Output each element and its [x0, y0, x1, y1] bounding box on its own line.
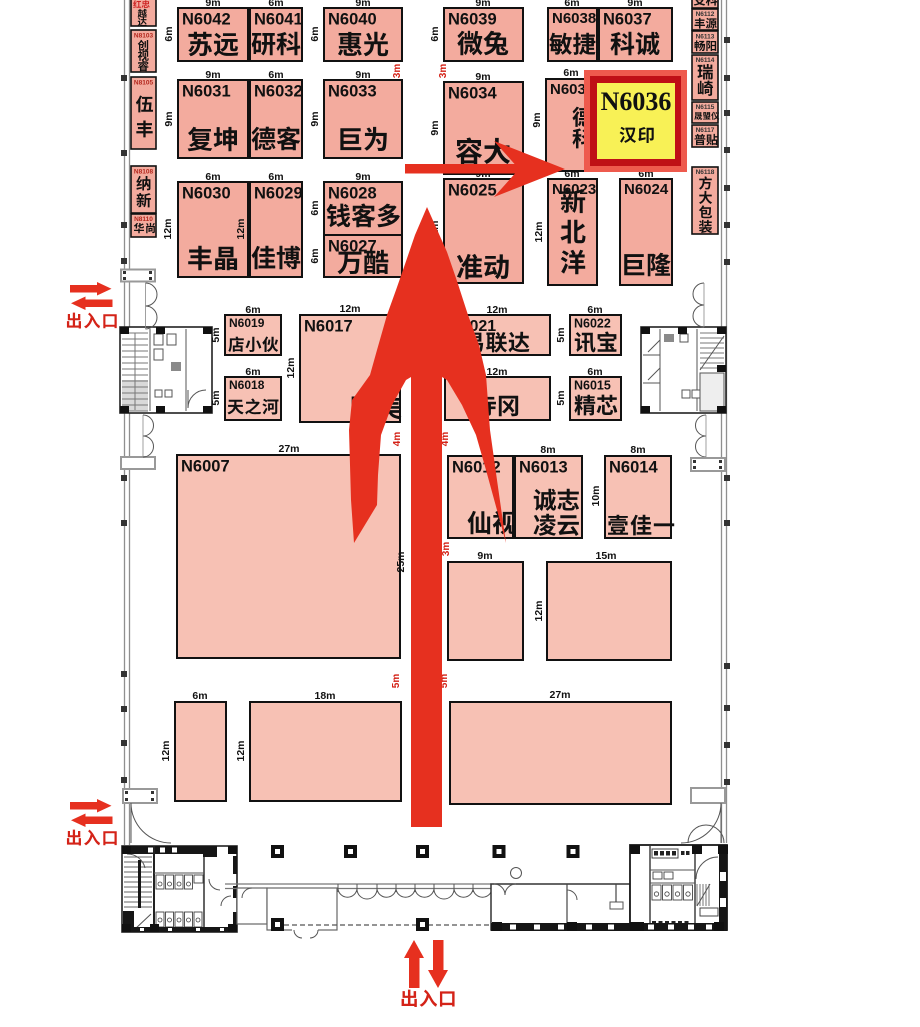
svg-text:9m: 9m: [355, 171, 370, 183]
svg-text:N6029: N6029: [254, 185, 303, 203]
svg-text:6m: 6m: [564, 0, 579, 9]
svg-text:6m: 6m: [163, 26, 175, 41]
svg-text:N6018: N6018: [229, 378, 265, 392]
svg-text:6m: 6m: [587, 366, 602, 378]
svg-text:6m: 6m: [268, 171, 283, 183]
svg-text:9m: 9m: [205, 69, 220, 81]
svg-text:N6019: N6019: [229, 316, 265, 330]
svg-text:N6033: N6033: [328, 83, 377, 101]
svg-text:6m: 6m: [268, 69, 283, 81]
svg-text:N6114: N6114: [696, 57, 715, 64]
svg-text:12m: 12m: [235, 218, 247, 239]
svg-text:N6032: N6032: [254, 83, 303, 101]
svg-text:N6113: N6113: [696, 34, 715, 41]
svg-text:N6039: N6039: [448, 11, 497, 29]
svg-text:6m: 6m: [587, 304, 602, 316]
svg-text:3m: 3m: [441, 542, 452, 557]
svg-text:12m: 12m: [235, 740, 247, 761]
svg-text:N6117: N6117: [696, 127, 715, 134]
svg-text:N6013: N6013: [519, 459, 568, 477]
svg-text:N6040: N6040: [328, 11, 377, 29]
svg-text:8m: 8m: [540, 444, 555, 456]
svg-text:N6118: N6118: [696, 169, 715, 176]
svg-text:18m: 18m: [314, 690, 335, 702]
svg-text:6m: 6m: [309, 248, 321, 263]
svg-text:N6042: N6042: [182, 11, 231, 29]
svg-text:6m: 6m: [268, 0, 283, 9]
svg-text:9m: 9m: [205, 0, 220, 9]
svg-text:N6007: N6007: [181, 458, 230, 476]
svg-text:6m: 6m: [429, 26, 441, 41]
svg-text:9m: 9m: [627, 0, 642, 9]
svg-text:N6037: N6037: [603, 11, 652, 29]
svg-text:9m: 9m: [355, 69, 370, 81]
svg-text:6m: 6m: [563, 67, 578, 79]
svg-text:N6030: N6030: [182, 185, 231, 203]
svg-text:N8105: N8105: [134, 80, 154, 87]
svg-text:12m: 12m: [486, 366, 507, 378]
svg-text:5m: 5m: [210, 327, 222, 342]
svg-text:6m: 6m: [245, 366, 260, 378]
svg-text:12m: 12m: [339, 303, 360, 315]
svg-text:15m: 15m: [595, 550, 616, 562]
svg-text:N6024: N6024: [624, 181, 669, 198]
svg-text:N6017: N6017: [304, 318, 353, 336]
svg-text:3m: 3m: [438, 64, 449, 79]
svg-text:5m: 5m: [555, 390, 567, 405]
svg-text:N6034: N6034: [448, 85, 497, 103]
svg-text:N6023: N6023: [552, 181, 596, 198]
svg-text:5m: 5m: [210, 390, 222, 405]
svg-text:9m: 9m: [355, 0, 370, 9]
svg-text:9m: 9m: [163, 111, 175, 126]
svg-text:12m: 12m: [533, 221, 545, 242]
svg-text:9m: 9m: [475, 0, 490, 9]
svg-text:N8110: N8110: [134, 216, 153, 223]
svg-text:N6036: N6036: [601, 87, 672, 116]
svg-text:6m: 6m: [205, 171, 220, 183]
svg-text:5m: 5m: [391, 674, 402, 689]
svg-text:N8103: N8103: [134, 33, 154, 40]
svg-text:N6022: N6022: [574, 317, 611, 331]
svg-text:12m: 12m: [162, 218, 174, 239]
svg-text:N6038: N6038: [552, 10, 596, 27]
svg-text:9m: 9m: [477, 550, 492, 562]
svg-text:N6025: N6025: [448, 182, 497, 200]
svg-text:4m: 4m: [392, 432, 403, 447]
svg-text:8m: 8m: [630, 444, 645, 456]
svg-text:9m: 9m: [309, 111, 321, 126]
svg-text:N6015: N6015: [574, 379, 611, 393]
svg-text:27m: 27m: [549, 689, 570, 701]
svg-text:9m: 9m: [531, 112, 543, 127]
svg-text:12m: 12m: [533, 600, 545, 621]
svg-text:25m: 25m: [395, 551, 407, 572]
svg-text:N6028: N6028: [328, 185, 377, 203]
svg-text:6m: 6m: [309, 26, 321, 41]
svg-text:12m: 12m: [160, 740, 172, 761]
svg-text:6m: 6m: [192, 690, 207, 702]
svg-text:3m: 3m: [392, 64, 403, 79]
svg-text:N6112: N6112: [696, 11, 715, 18]
svg-text:N6031: N6031: [182, 83, 231, 101]
svg-text:6m: 6m: [245, 304, 260, 316]
svg-text:N6041: N6041: [254, 11, 303, 29]
svg-text:6m: 6m: [564, 168, 579, 180]
svg-text:5m: 5m: [555, 327, 567, 342]
svg-text:10m: 10m: [590, 485, 602, 506]
svg-text:9m: 9m: [429, 120, 441, 135]
svg-text:9m: 9m: [475, 71, 490, 83]
svg-text:N8108: N8108: [134, 169, 154, 176]
svg-text:N6115: N6115: [696, 104, 715, 111]
svg-text:12m: 12m: [285, 357, 297, 378]
svg-text:N6014: N6014: [609, 459, 658, 477]
svg-text:27m: 27m: [278, 443, 299, 455]
svg-text:12m: 12m: [486, 304, 507, 316]
svg-text:6m: 6m: [309, 200, 321, 215]
